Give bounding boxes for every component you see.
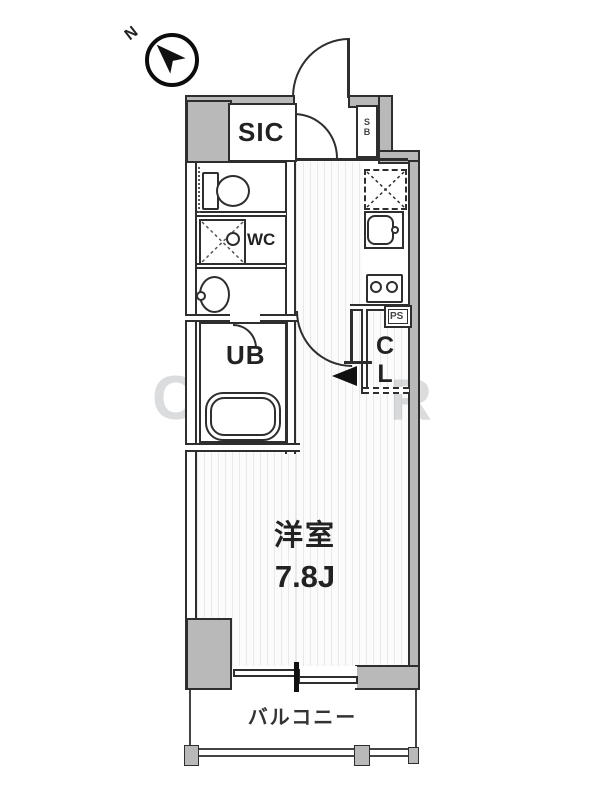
wash-basin-faucet <box>196 291 206 301</box>
entry-arrow-icon <box>332 366 357 386</box>
kitchen-sink-bowl <box>367 215 394 245</box>
balcony-right-line <box>414 690 417 750</box>
pipe-space-label: PS <box>390 312 403 322</box>
stove-burner-left <box>370 281 382 293</box>
balcony-window-tick <box>294 662 299 692</box>
balcony-rail <box>189 748 418 757</box>
balcony-left-line <box>189 690 192 752</box>
wc-label: WC <box>247 231 275 248</box>
left-wall <box>185 95 197 690</box>
stove-burner-right <box>386 281 398 293</box>
kitchen-faucet <box>391 226 399 234</box>
balcony-label: バルコニー <box>220 708 385 728</box>
compass-north-label: N <box>122 24 141 44</box>
pillar-bottom-left <box>186 618 232 690</box>
entrance-step-line <box>296 158 408 161</box>
compass-needle-icon <box>149 37 195 83</box>
ub-door-gap <box>230 314 260 322</box>
balcony-post-left <box>184 745 199 766</box>
refrigerator-space <box>364 169 407 210</box>
entry-arrow-line <box>344 361 372 364</box>
wc-divider-1 <box>197 211 286 217</box>
washer-drain <box>226 232 240 246</box>
pillar-bottom-right <box>355 665 420 690</box>
floor-plan: N C R SIC SB WC <box>0 0 600 800</box>
toilet-bowl <box>216 175 250 207</box>
balcony-window-panel-right <box>298 676 358 684</box>
pillar-top-left <box>186 100 232 163</box>
toilet-door-dotted-line <box>198 167 200 213</box>
cl-left-wall <box>361 309 368 394</box>
balcony-window-panel-left <box>233 669 300 677</box>
ub-bottom-wall <box>185 443 300 452</box>
sic-label: SIC <box>238 119 284 145</box>
room-size: 7.8J <box>240 561 370 592</box>
bathtub <box>205 392 281 441</box>
cl-folding-door <box>363 387 409 394</box>
shoe-box-label: SB <box>362 117 371 137</box>
compass-icon <box>145 33 199 87</box>
bathtub-inner-line <box>210 397 276 436</box>
balcony-post-right <box>408 747 419 764</box>
room-label: 洋室 7.8J <box>240 522 370 592</box>
ub-label: UB <box>226 342 266 368</box>
refrigerator-x-icon <box>366 171 405 208</box>
balcony-post-middle <box>354 745 370 766</box>
entrance-door-arc <box>292 38 349 97</box>
cl-label: CL <box>372 332 397 388</box>
right-wall <box>408 160 420 667</box>
room-name: 洋室 <box>240 522 370 551</box>
